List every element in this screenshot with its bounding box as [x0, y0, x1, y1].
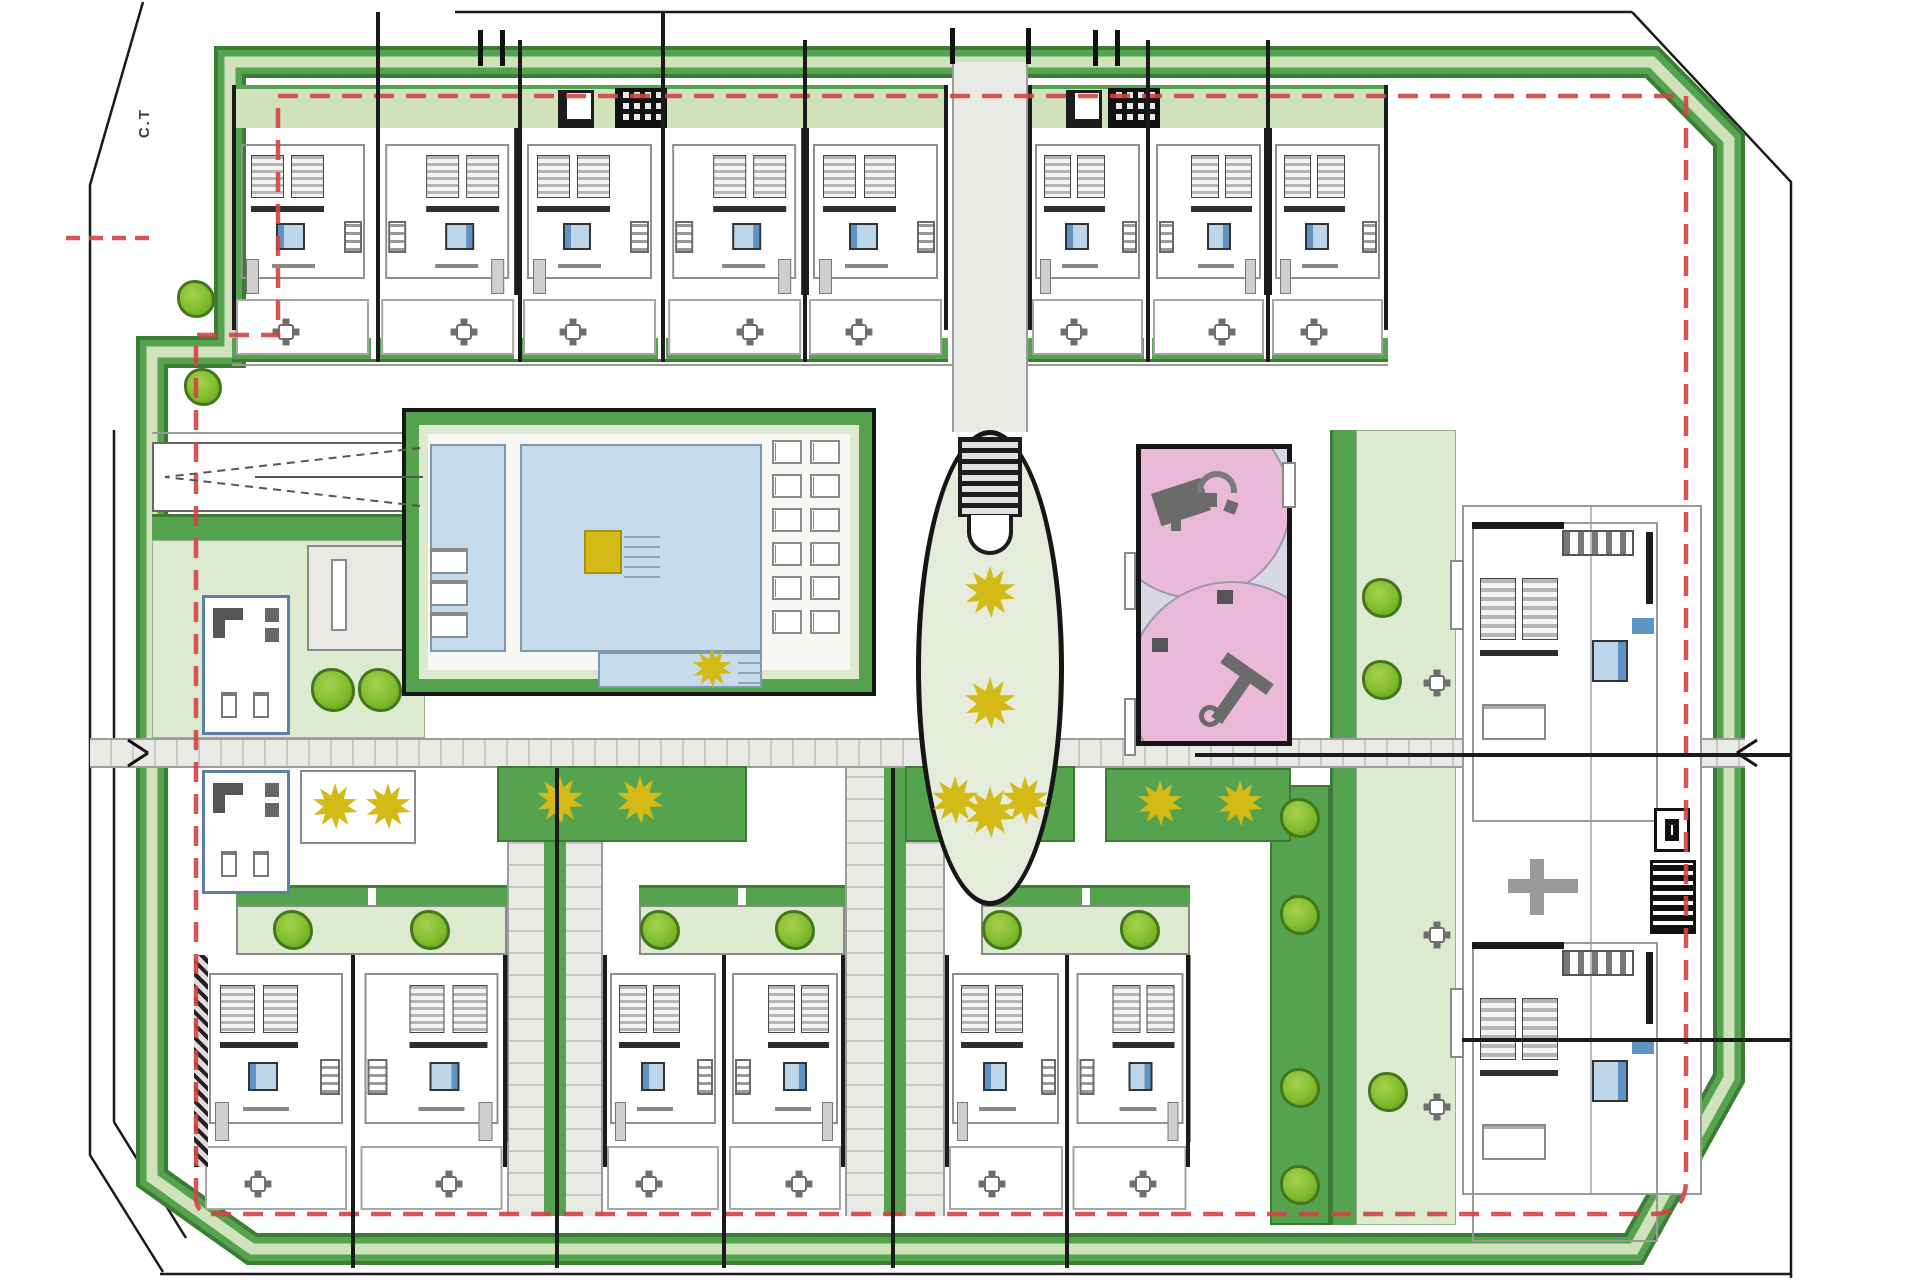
tv-wall-glyph	[272, 264, 315, 268]
patio-table-glyph	[984, 1176, 1000, 1192]
kitchen-glyph	[1041, 1059, 1057, 1095]
housing-unit	[724, 955, 845, 1215]
patio-table-glyph	[278, 324, 294, 340]
kitchen-glyph	[697, 1059, 713, 1095]
sofa-glyph	[533, 259, 546, 294]
housing-unit	[1028, 128, 1148, 360]
wardrobe-glyph	[220, 1042, 298, 1048]
front-green-strip	[639, 885, 845, 905]
terrace-outline	[607, 1146, 720, 1210]
wardrobe-glyph	[1112, 1042, 1174, 1048]
tv-wall-glyph	[1302, 264, 1338, 268]
bed-glyph	[577, 155, 610, 198]
bed-glyph	[291, 155, 324, 198]
unit-party-wall	[805, 128, 809, 295]
bathroom-glyph	[1305, 223, 1329, 250]
desk-glyph	[213, 608, 243, 620]
desk-glyph	[213, 795, 225, 813]
wardrobe-glyph	[427, 206, 500, 212]
sun-lounger	[772, 474, 802, 498]
playground	[1136, 444, 1292, 746]
wardrobe-glyph	[961, 1042, 1023, 1048]
sun-lounger	[430, 548, 468, 574]
bathroom-glyph	[732, 223, 761, 250]
tv-wall-glyph	[637, 1107, 673, 1111]
bed-glyph	[619, 985, 647, 1033]
play-structure-icon	[1203, 493, 1217, 507]
terrace-outline	[949, 1146, 1063, 1210]
patio-table-glyph	[456, 324, 472, 340]
housing-unit	[518, 128, 661, 360]
sofa-glyph	[1482, 1124, 1546, 1160]
bathroom-glyph	[248, 1062, 279, 1092]
tree-icon	[177, 280, 215, 318]
bench-glyph	[1124, 698, 1136, 756]
kitchen-glyph	[344, 221, 363, 253]
terrace-outline	[205, 1146, 348, 1210]
utility-box	[1066, 90, 1102, 128]
bed-glyph	[1317, 155, 1345, 198]
patio-table-glyph	[441, 1176, 457, 1192]
terrace-outline	[667, 299, 800, 356]
housing-unit	[354, 955, 508, 1215]
tree-icon	[640, 910, 680, 950]
sun-lounger	[772, 440, 802, 464]
patio-table-glyph	[1135, 1176, 1151, 1192]
unit-interior	[375, 128, 518, 360]
bathroom-glyph	[849, 223, 878, 250]
block-side-wall	[1384, 85, 1388, 330]
bathroom-glyph	[983, 1062, 1008, 1092]
terrace-outline	[1032, 299, 1144, 356]
unit-interior	[1068, 955, 1191, 1215]
sun-lounger	[810, 440, 840, 464]
bed-glyph	[220, 985, 255, 1033]
bed-glyph	[1044, 155, 1072, 198]
terrace-outline	[1072, 1146, 1186, 1210]
housing-unit	[945, 955, 1068, 1215]
refuse-store	[615, 88, 667, 128]
bed-glyph	[1480, 578, 1516, 640]
bed-glyph	[427, 155, 460, 198]
workstation-glyph	[221, 692, 237, 718]
bed-glyph	[823, 155, 856, 198]
bathroom-glyph	[1207, 223, 1231, 250]
sofa-glyph	[491, 259, 504, 294]
unit-interior	[232, 128, 375, 360]
terrace-outline	[381, 299, 514, 356]
kitchen-glyph	[735, 1059, 751, 1095]
tv-wall-glyph	[243, 1107, 289, 1111]
bench-glyph	[1124, 552, 1136, 610]
sun-lounger	[430, 580, 468, 606]
block-side-wall	[1186, 955, 1190, 1167]
shrub-icon	[536, 776, 584, 824]
counter-glyph	[331, 559, 347, 631]
wardrobe-glyph	[768, 1042, 830, 1048]
workstation-glyph	[253, 851, 269, 877]
bed-glyph	[1225, 155, 1253, 198]
wardrobe-glyph	[713, 206, 786, 212]
housing-unit	[375, 128, 518, 360]
cabinet-glyph	[265, 628, 279, 642]
patio-table-glyph	[565, 324, 581, 340]
cabinet-glyph	[265, 783, 279, 797]
kitchen-glyph	[1159, 221, 1175, 253]
unit-party-wall	[518, 128, 522, 295]
apartment-wall	[1646, 532, 1653, 604]
sofa-glyph	[1245, 259, 1256, 294]
tv-wall-glyph	[979, 1107, 1016, 1111]
bed-glyph	[1522, 578, 1558, 640]
walkway-green-stripe	[884, 768, 906, 1216]
elevator-glyph	[1654, 808, 1690, 852]
bed-glyph	[409, 985, 444, 1033]
bench-glyph	[1152, 638, 1168, 652]
bed-glyph	[537, 155, 570, 198]
bed-glyph	[251, 155, 284, 198]
site-plan-canvas: C.T	[0, 0, 1920, 1280]
wardrobe-glyph	[251, 206, 324, 212]
entry-ramp	[152, 442, 423, 512]
sofa-glyph	[1482, 704, 1546, 740]
shrub-icon	[1217, 780, 1263, 826]
bed-glyph	[1284, 155, 1312, 198]
bench-glyph	[1450, 988, 1464, 1058]
utility-box	[558, 90, 594, 128]
sun-lounger	[772, 508, 802, 532]
shrub-icon	[692, 648, 732, 688]
wardrobe-glyph	[1480, 650, 1558, 656]
shrub-icon	[964, 786, 1016, 838]
patio-table-glyph	[1306, 324, 1322, 340]
appliance-glyph	[1632, 1038, 1654, 1054]
tree-icon	[1362, 578, 1402, 618]
strip-gap	[1082, 888, 1090, 905]
sun-lounger	[772, 610, 802, 634]
wardrobe-glyph	[1191, 206, 1252, 212]
tv-wall-glyph	[558, 264, 601, 268]
bathroom-glyph	[429, 1062, 460, 1092]
unit-interior	[603, 955, 724, 1215]
workstation-glyph	[221, 851, 237, 877]
hatched-wall	[194, 955, 208, 1167]
kitchen-glyph	[320, 1059, 340, 1095]
bed-glyph	[1522, 998, 1558, 1060]
bathroom-glyph	[1592, 1060, 1628, 1102]
cabinet-glyph	[265, 803, 279, 817]
bathroom-glyph	[276, 223, 305, 250]
housing-unit	[232, 128, 375, 360]
terrace-outline	[523, 299, 656, 356]
tree-icon	[184, 368, 222, 406]
kitchen-glyph	[367, 1059, 387, 1095]
tv-wall-glyph	[722, 264, 765, 268]
unit-interior	[200, 955, 354, 1215]
tree-icon	[1368, 1072, 1408, 1112]
bed-glyph	[653, 985, 681, 1033]
kitchen-glyph	[917, 221, 936, 253]
unit-interior	[1148, 128, 1268, 360]
block-side-wall	[841, 955, 845, 1167]
stairwell	[1650, 860, 1696, 934]
shrub-icon	[964, 677, 1016, 729]
shrub-icon	[584, 532, 622, 570]
tree-icon	[1120, 910, 1160, 950]
sun-lounger	[430, 612, 468, 638]
kitchen-glyph	[1079, 1059, 1095, 1095]
kitchen-glyph	[1122, 221, 1138, 253]
sun-lounger	[810, 610, 840, 634]
strip-gap	[368, 888, 376, 905]
wardrobe-glyph	[619, 1042, 681, 1048]
tv-wall-glyph	[775, 1107, 811, 1111]
tv-wall-glyph	[845, 264, 888, 268]
tree-icon	[311, 668, 355, 712]
workstation-glyph	[253, 692, 269, 718]
block-side-wall	[1028, 85, 1032, 330]
bed-glyph	[753, 155, 786, 198]
bench-glyph	[1217, 590, 1233, 604]
sun-lounger	[810, 542, 840, 566]
tree-icon	[1362, 660, 1402, 700]
unit-interior	[518, 128, 661, 360]
sofa-glyph	[819, 259, 832, 294]
unit-interior	[724, 955, 845, 1215]
shrub-icon	[365, 783, 411, 829]
tree-icon	[982, 910, 1022, 950]
shrub-icon	[1137, 780, 1183, 826]
sofa-glyph	[1040, 259, 1051, 294]
bathroom-glyph	[641, 1062, 665, 1092]
terrace-outline	[236, 299, 369, 356]
bed-glyph	[801, 985, 829, 1033]
kitchen-glyph	[1362, 221, 1378, 253]
unit-interior	[662, 128, 805, 360]
appliance-glyph	[1632, 618, 1654, 634]
sofa-glyph	[615, 1102, 626, 1141]
wardrobe-glyph	[823, 206, 896, 212]
wardrobe-glyph	[537, 206, 610, 212]
bed-glyph	[864, 155, 897, 198]
bed-glyph	[467, 155, 500, 198]
bed-glyph	[768, 985, 796, 1033]
sofa-glyph	[822, 1102, 833, 1141]
block-side-wall	[944, 85, 948, 330]
shrub-icon	[964, 566, 1016, 618]
garden-table-glyph	[1429, 1099, 1445, 1115]
sun-lounger	[772, 576, 802, 600]
tv-wall-glyph	[418, 1107, 464, 1111]
transformer-room-label: C.T	[136, 108, 153, 138]
sofa-glyph	[478, 1102, 492, 1141]
tree-icon	[358, 668, 402, 712]
bed-glyph	[452, 985, 487, 1033]
tree-icon	[273, 910, 313, 950]
bed-glyph	[1112, 985, 1140, 1033]
tree-icon	[775, 910, 815, 950]
play-structure-icon	[1171, 515, 1181, 531]
sofa-glyph	[778, 259, 791, 294]
unit-interior	[1028, 128, 1148, 360]
central-north-walkway	[952, 62, 1028, 432]
sales-office-room	[202, 770, 290, 894]
spring-rider-icon	[1199, 705, 1221, 727]
bed-glyph	[1191, 155, 1219, 198]
plan-content-layer	[0, 0, 1920, 1280]
apartment-outline	[1472, 522, 1658, 822]
sun-lounger	[772, 542, 802, 566]
wardrobe-glyph	[1480, 1070, 1558, 1076]
bed-glyph	[1077, 155, 1105, 198]
apartment-wall	[1646, 952, 1653, 1024]
sofa-glyph	[246, 259, 259, 294]
bathroom-glyph	[563, 223, 592, 250]
bed-glyph	[995, 985, 1023, 1033]
apartment-wall	[1472, 522, 1564, 529]
desk-cluster-glyph	[1530, 859, 1544, 915]
sofa-glyph	[1167, 1102, 1178, 1141]
cabinet-glyph	[265, 608, 279, 622]
tv-wall-glyph	[1062, 264, 1098, 268]
bed-glyph	[263, 985, 298, 1033]
tv-wall-glyph	[435, 264, 478, 268]
shrub-icon	[312, 783, 358, 829]
bed-glyph	[1146, 985, 1174, 1033]
garden-edge-strip	[1270, 785, 1330, 1225]
tree-icon	[1280, 798, 1320, 838]
housing-unit	[1268, 128, 1388, 360]
kitchen-glyph	[1562, 530, 1634, 556]
unit-interior	[945, 955, 1068, 1215]
unit-party-wall	[1268, 128, 1272, 295]
garden-table-glyph	[1429, 927, 1445, 943]
bed-glyph	[961, 985, 989, 1033]
patio-table-glyph	[250, 1176, 266, 1192]
block-side-wall	[232, 85, 236, 330]
green-planter	[1105, 768, 1291, 842]
sofa-glyph	[1280, 259, 1291, 294]
amenity-green-bar	[152, 514, 423, 540]
bathroom-glyph	[1065, 223, 1089, 250]
desk-glyph	[213, 620, 225, 638]
bathroom-glyph	[783, 1062, 807, 1092]
wardrobe-glyph	[409, 1042, 487, 1048]
pool-steps	[738, 656, 762, 684]
sun-lounger	[810, 576, 840, 600]
pool-enclosure	[402, 408, 876, 696]
stair-landing	[967, 515, 1013, 555]
tree-icon	[410, 910, 450, 950]
unit-interior	[1268, 128, 1388, 360]
tree-icon	[1280, 1165, 1320, 1205]
sun-lounger	[810, 474, 840, 498]
sofa-glyph	[957, 1102, 968, 1141]
sales-office-room	[202, 595, 290, 735]
unit-interior	[805, 128, 948, 360]
kitchen-glyph	[388, 221, 407, 253]
pool-steps	[624, 534, 660, 578]
apartment-wall	[1472, 942, 1564, 949]
housing-unit	[805, 128, 948, 360]
patio-table-glyph	[742, 324, 758, 340]
housing-unit	[1148, 128, 1268, 360]
kitchen-glyph	[1562, 950, 1634, 976]
block-side-wall	[603, 955, 607, 1167]
refuse-store	[1108, 88, 1160, 128]
sofa-glyph	[215, 1102, 229, 1141]
unit-interior	[354, 955, 508, 1215]
housing-unit	[662, 128, 805, 360]
patio-table-glyph	[641, 1176, 657, 1192]
tree-icon	[1280, 1068, 1320, 1108]
bed-glyph	[713, 155, 746, 198]
patio-table-glyph	[1066, 324, 1082, 340]
sun-lounger	[810, 508, 840, 532]
stairs-glyph	[958, 437, 1022, 517]
housing-unit	[603, 955, 724, 1215]
bathroom-glyph	[1128, 1062, 1153, 1092]
wardrobe-glyph	[1044, 206, 1105, 212]
block-side-wall	[503, 955, 507, 1167]
apartment-outline	[1472, 942, 1658, 1242]
garden-edge-strip	[1330, 430, 1356, 1225]
housing-unit	[1068, 955, 1191, 1215]
kitchen-glyph	[674, 221, 693, 253]
bench-glyph	[1282, 462, 1296, 508]
bathroom-glyph	[1592, 640, 1628, 682]
bed-glyph	[1480, 998, 1516, 1060]
patio-table-glyph	[851, 324, 867, 340]
kitchen-glyph	[630, 221, 649, 253]
terrace-outline	[729, 1146, 842, 1210]
bench-glyph	[1450, 560, 1464, 630]
tv-wall-glyph	[1198, 264, 1234, 268]
desk-glyph	[213, 783, 243, 795]
garden-table-glyph	[1429, 675, 1445, 691]
terrace-outline	[809, 299, 942, 356]
block-side-wall	[945, 955, 949, 1167]
bathroom-glyph	[445, 223, 474, 250]
terrace-outline	[1272, 299, 1384, 356]
housing-unit	[200, 955, 354, 1215]
patio-table-glyph	[791, 1176, 807, 1192]
apartment-building	[1462, 505, 1702, 1195]
shrub-icon	[616, 776, 664, 824]
terrace-outline	[360, 1146, 503, 1210]
wardrobe-glyph	[1284, 206, 1345, 212]
patio-table-glyph	[1214, 324, 1230, 340]
tree-icon	[1280, 895, 1320, 935]
terrace-outline	[1153, 299, 1265, 356]
strip-gap	[738, 888, 746, 905]
tv-wall-glyph	[1119, 1107, 1156, 1111]
